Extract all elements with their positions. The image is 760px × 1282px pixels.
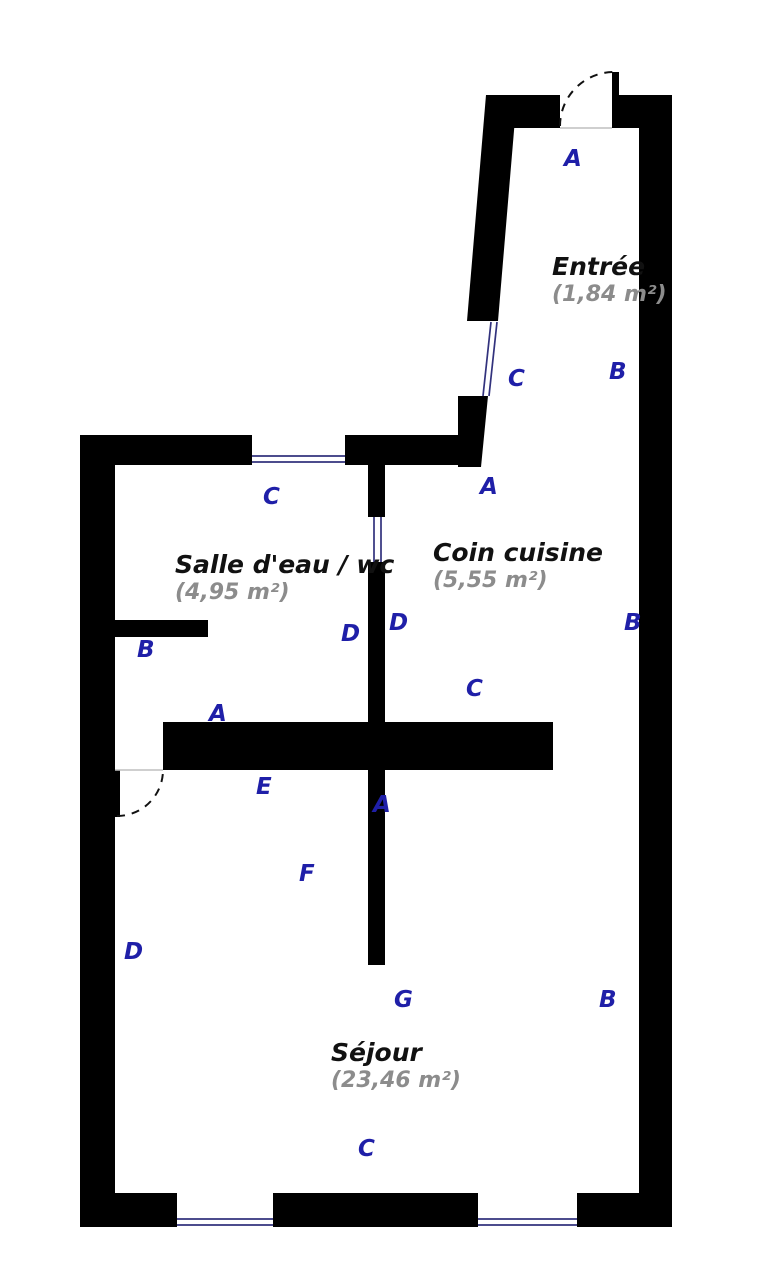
segment-label-c-sejour: C <box>358 1138 375 1161</box>
segment-label-c-entry: C <box>508 368 525 391</box>
entry-diagonal-wall <box>467 95 517 321</box>
room-name-sejour: Séjour <box>331 1038 461 1068</box>
upper-wall-left-segment <box>80 435 252 465</box>
bottom-wall-segment-1 <box>80 1193 177 1227</box>
room-name-entree: Entrée <box>552 252 667 282</box>
segment-label-c-kitchen-low: C <box>466 678 483 701</box>
sejour-door-leaf <box>114 770 120 817</box>
segment-label-b-kitchen: B <box>624 612 642 635</box>
sejour-door-swing-arc <box>117 770 163 816</box>
segment-label-b-entry: B <box>609 361 627 384</box>
room-label-coin-cuisine: Coin cuisine (5,55 m²) <box>433 538 603 594</box>
segment-label-c-bathroom: C <box>263 486 280 509</box>
bathroom-stub-wall <box>113 620 208 637</box>
room-name-coin-cuisine: Coin cuisine <box>433 538 603 568</box>
room-label-sejour: Séjour (23,46 m²) <box>331 1038 461 1094</box>
bottom-wall-segment-2 <box>273 1193 478 1227</box>
floor-plan-canvas: A B C A C D B D B C A E A F D G B C Entr… <box>0 0 760 1282</box>
entry-top-wall-right <box>613 95 672 128</box>
room-area-salle-deau: (4,95 m²) <box>175 580 394 606</box>
segment-label-f-sejour: F <box>299 863 315 886</box>
segment-label-a-kitchen: A <box>480 476 498 499</box>
room-name-salle-deau: Salle d'eau / wc <box>175 550 394 580</box>
room-label-entree: Entrée (1,84 m²) <box>552 252 667 308</box>
room-area-sejour: (23,46 m²) <box>331 1068 461 1094</box>
bottom-wall-segment-3 <box>577 1193 672 1227</box>
entry-door-leaf <box>612 72 619 128</box>
segment-label-a-bathroom: A <box>209 703 227 726</box>
segment-label-a-sejour: A <box>373 794 391 817</box>
room-area-entree: (1,84 m²) <box>552 282 667 308</box>
segment-label-g-sejour: G <box>394 989 413 1012</box>
room-area-coin-cuisine: (5,55 m²) <box>433 568 603 594</box>
segment-label-e-sejour: E <box>256 776 272 799</box>
entry-door-swing-arc <box>560 72 614 126</box>
segment-label-d-bathroom: D <box>341 623 360 646</box>
separator-wall <box>163 722 553 770</box>
segment-label-d-sejour: D <box>124 941 143 964</box>
interior-vertical-wall-top <box>368 465 385 517</box>
segment-label-a-entry: A <box>564 148 582 171</box>
segment-label-d-kitchen: D <box>389 612 408 635</box>
room-label-salle-deau: Salle d'eau / wc (4,95 m²) <box>175 550 394 606</box>
entry-diagonal-wall-lower <box>458 396 488 467</box>
left-exterior-wall <box>80 435 115 1227</box>
upper-wall-right-segment <box>345 435 461 465</box>
segment-label-b-bathroom: B <box>137 639 155 662</box>
segment-label-b-sejour: B <box>599 989 617 1012</box>
